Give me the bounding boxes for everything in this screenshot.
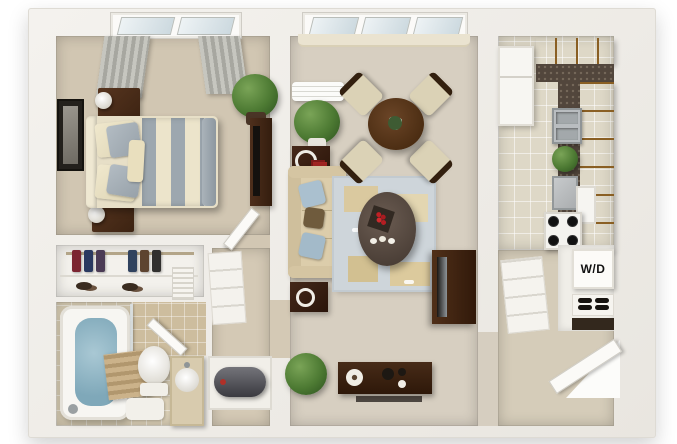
kitchen-plant: [552, 146, 578, 172]
red-berries-decor: [376, 211, 382, 217]
brown-throw-pillow: [303, 207, 326, 230]
window-valance: [298, 34, 470, 47]
air-conditioner-icon: [292, 82, 344, 101]
tv: [437, 257, 447, 317]
bath-floor-mat: [126, 398, 164, 420]
bathroom-vanity: [170, 356, 204, 426]
sideboard-mat: [356, 396, 422, 402]
tv-media-stand: [432, 250, 476, 324]
hall-living-opening: [270, 300, 290, 358]
window-pane: [361, 17, 411, 35]
sink-basin: [556, 128, 578, 140]
window-pane: [413, 17, 463, 35]
pantry-shelves: [500, 256, 550, 334]
burner: [567, 216, 578, 227]
floorplan-image: W/D: [0, 0, 677, 444]
kitchen-sink: [552, 108, 582, 144]
bed-striped-duvet: [142, 118, 204, 206]
decor-plate: [346, 369, 363, 386]
linen-shelves: [208, 251, 247, 325]
wall-art-print: [63, 106, 78, 164]
washer-dryer-unit: W/D: [572, 249, 614, 289]
shoes-pair: [122, 283, 138, 291]
hanging-garment: [72, 250, 81, 272]
hanging-garment: [152, 250, 161, 272]
bathtub-faucet: [68, 404, 78, 414]
living-entry-opening: [478, 332, 498, 426]
kitchen-cabinets-right: [580, 82, 614, 250]
refrigerator-door-seam: [500, 76, 532, 78]
water-heater-closet: [208, 356, 272, 410]
hanging-garment: [96, 250, 105, 272]
sofa-back: [288, 166, 301, 278]
sofa-end-table: [290, 282, 328, 312]
pillow-accent: [127, 140, 145, 183]
dining-table: [368, 98, 424, 150]
shoes-pair: [595, 298, 609, 303]
shower-tile-surround: [132, 302, 206, 356]
window-pane: [309, 17, 359, 35]
dishwasher: [552, 176, 578, 210]
shoes-pair: [76, 282, 92, 290]
water-heater-valve: [220, 379, 226, 385]
white-ball-decor: [398, 380, 406, 388]
coffee-table: [358, 192, 416, 266]
water-heater: [214, 367, 266, 397]
white-cup: [296, 288, 315, 307]
blue-throw-pillow: [298, 232, 326, 260]
louver-vent-panel: [172, 267, 194, 300]
hanging-garment: [128, 250, 137, 272]
lamp-bottom: [88, 206, 105, 223]
vanity-sink: [175, 368, 199, 392]
washer-dryer-label: W/D: [581, 262, 606, 276]
sink-basin: [556, 112, 578, 124]
window-pane: [177, 17, 235, 35]
sideboard: [338, 362, 432, 394]
toilet: [138, 346, 170, 384]
bedroom-tv: [253, 126, 260, 196]
burner: [548, 216, 559, 227]
hanging-garment: [140, 250, 149, 272]
wall-art-frame: [57, 99, 84, 171]
lamp-top: [95, 92, 112, 109]
refrigerator: [498, 46, 534, 126]
kitchen-cabinets-top: [536, 38, 614, 64]
vanity-faucet: [184, 362, 190, 368]
bed-foot-throw: [202, 118, 216, 206]
bedroom-window: [110, 12, 242, 39]
white-decor-balls: [370, 238, 377, 244]
decor-bowls: [382, 368, 394, 380]
blue-throw-pillow: [297, 179, 326, 208]
coffee-table-tray: [367, 205, 395, 233]
shoes-pair: [578, 298, 592, 303]
floor-bush-plant: [285, 353, 327, 395]
bed: [86, 116, 218, 208]
sofa-arm: [288, 166, 346, 178]
window-pane: [117, 17, 175, 35]
bedroom-dresser: [250, 118, 272, 206]
hanging-garment: [84, 250, 93, 272]
kitchen-counter-top: [536, 64, 614, 82]
entry-dark-shelf: [572, 318, 614, 330]
entry-shoe-shelf: [572, 294, 614, 316]
toilet-tank: [140, 383, 168, 396]
rug-tuft: [404, 280, 414, 284]
flower-centerpiece: [388, 116, 402, 130]
